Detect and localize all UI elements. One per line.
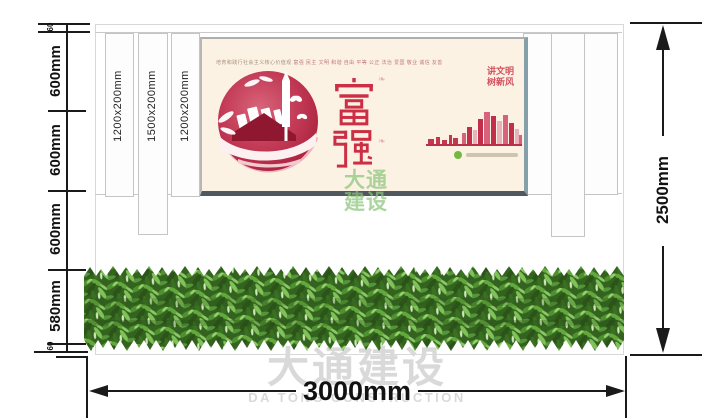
slat-label-2: 1500x200mm bbox=[145, 51, 159, 161]
bottom-dim-3000: 3000mm bbox=[287, 377, 427, 405]
skyline-houses bbox=[428, 135, 458, 144]
poster-header-values: 富强 民主 文明 和谐 自由 平等 公正 法治 爱国 敬业 诚信 友善 bbox=[293, 60, 442, 66]
watermark-green: 大通 建设 bbox=[344, 170, 388, 214]
right-tick-bottom bbox=[630, 354, 702, 356]
poster-header-text: 培育和践行社会主义核心价值观 富强 民主 文明 和谐 自由 平等 公正 法治 爱… bbox=[216, 59, 443, 66]
papercut-emblem bbox=[212, 67, 324, 179]
elevation-drawing: 1200x200mm 1500x200mm 1200x200mm 培育和践行社会… bbox=[0, 0, 720, 420]
bottom-ext-corner bbox=[56, 356, 88, 358]
hedge-shade-band2 bbox=[84, 320, 624, 326]
sprig-decoration-top: ❧ bbox=[378, 74, 386, 85]
left-tick-3 bbox=[48, 190, 86, 192]
bottom-ext-left bbox=[86, 356, 88, 418]
slogan-text: 讲文明 树新风 bbox=[487, 66, 514, 88]
left-dim-line bbox=[66, 23, 68, 353]
arrowhead-up bbox=[656, 25, 670, 50]
left-dim-600-3: 600mm bbox=[46, 194, 64, 264]
bottom-dim-line-right bbox=[418, 390, 606, 392]
watermark-green-line1: 大通 bbox=[344, 170, 388, 192]
bottom-ext-right bbox=[625, 356, 627, 418]
left-dim-600-1: 600mm bbox=[46, 36, 64, 106]
arrowhead-down bbox=[656, 328, 670, 353]
hedge-body bbox=[84, 266, 624, 351]
panel-right-2 bbox=[551, 33, 585, 237]
hedge-shade-band bbox=[84, 298, 624, 306]
right-tick-top bbox=[630, 22, 702, 24]
left-dim-60-bottom: 60 bbox=[45, 331, 55, 361]
skyline-baseline bbox=[426, 144, 522, 146]
watermark-green-line2: 建设 bbox=[344, 192, 388, 214]
slogan-line-2: 树新风 bbox=[487, 77, 514, 88]
poster-header-prefix: 培育和践行社会主义核心价值观 bbox=[216, 60, 292, 66]
arrowhead-left bbox=[89, 385, 108, 397]
slogan-line-1: 讲文明 bbox=[487, 66, 514, 77]
caption-smudge bbox=[466, 153, 518, 157]
main-characters: 富 强 bbox=[332, 78, 378, 182]
hedge bbox=[84, 258, 624, 354]
slat-label-3: 1200x200mm bbox=[178, 51, 192, 161]
sprig-decoration-bottom: ❧ bbox=[378, 136, 386, 147]
skyline-bars bbox=[462, 112, 522, 144]
left-tick-6 bbox=[34, 351, 88, 353]
bottom-dim-line-left bbox=[97, 390, 296, 392]
char-fu-artwork bbox=[332, 78, 376, 126]
left-tick-2 bbox=[48, 110, 86, 112]
left-dim-600-2: 600mm bbox=[46, 115, 64, 185]
skyline-silhouette bbox=[426, 109, 522, 147]
green-seal-icon bbox=[454, 151, 462, 159]
panel-right-3 bbox=[584, 33, 618, 195]
slat-label-1: 1200x200mm bbox=[111, 51, 125, 161]
arrowhead-right bbox=[606, 385, 625, 397]
right-dim-2500: 2500mm bbox=[653, 145, 673, 235]
